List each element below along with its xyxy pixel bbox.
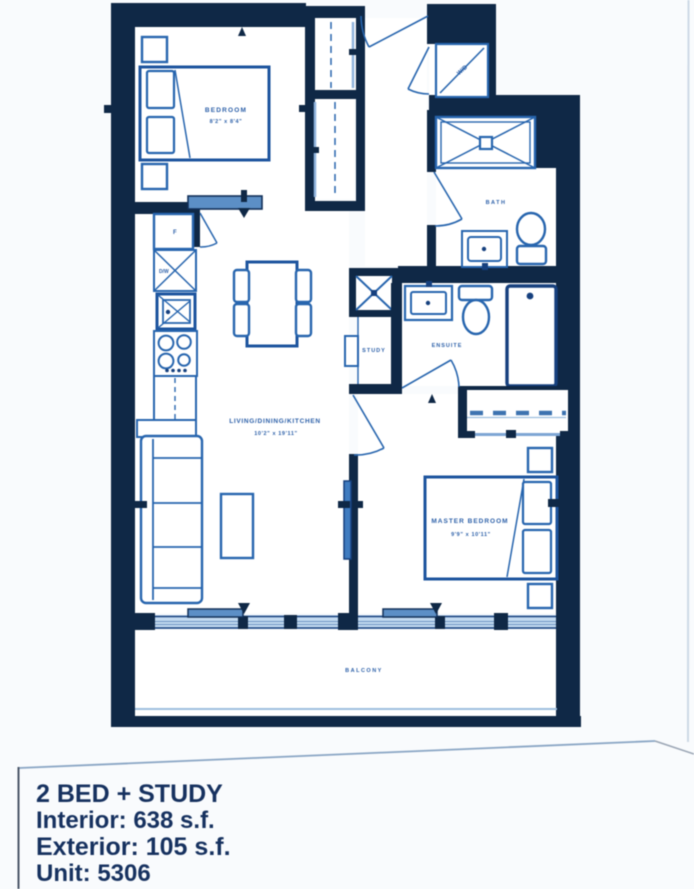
svg-text:2 BED + STUDY: 2 BED + STUDY	[36, 780, 223, 808]
svg-text:F: F	[173, 230, 177, 236]
svg-text:Interior: 638 s.f.: Interior: 638 s.f.	[36, 807, 215, 834]
svg-text:BEDROOM: BEDROOM	[205, 107, 247, 114]
svg-text:BATH: BATH	[486, 200, 507, 206]
svg-text:D/W: D/W	[159, 269, 169, 275]
svg-text:MASTER BEDROOM: MASTER BEDROOM	[431, 518, 508, 525]
svg-text:10'2" x 19'11": 10'2" x 19'11"	[254, 431, 297, 437]
svg-text:Unit: 5306: Unit: 5306	[36, 860, 151, 887]
svg-text:LIVING/DINING/KITCHEN: LIVING/DINING/KITCHEN	[229, 418, 321, 425]
svg-text:Exterior: 105 s.f.: Exterior: 105 s.f.	[36, 833, 231, 861]
svg-text:BALCONY: BALCONY	[345, 668, 383, 674]
svg-text:ENSUITE: ENSUITE	[432, 343, 463, 349]
svg-text:8'2" x 8'4": 8'2" x 8'4"	[210, 119, 243, 125]
svg-text:STUDY: STUDY	[362, 348, 386, 354]
svg-text:9'9" x 10'11": 9'9" x 10'11"	[451, 532, 491, 538]
